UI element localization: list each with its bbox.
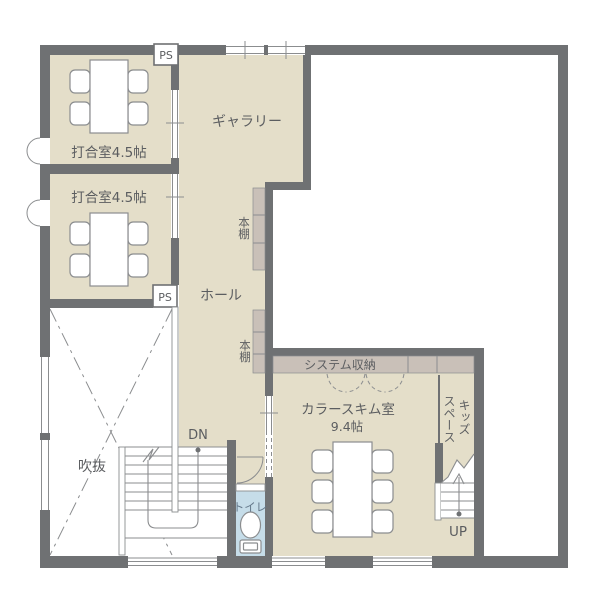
chair-icon xyxy=(372,510,393,533)
gallery-label: ギャラリー xyxy=(212,114,282,130)
meeting-room-1-label: 打合室4.5帖 xyxy=(71,144,146,161)
ps-shaft: PS xyxy=(153,285,177,307)
stair-start-dot xyxy=(196,448,201,453)
floor-plan: PS PS xyxy=(0,0,611,611)
wall-toilet-left xyxy=(227,440,236,556)
bookshelf-icon xyxy=(253,188,265,270)
stairs-down-label: DN xyxy=(188,428,208,443)
window xyxy=(272,556,325,568)
wall-hall-east-b xyxy=(265,477,273,556)
system-storage-label: システム収納 xyxy=(304,358,376,372)
meeting-table-icon xyxy=(90,60,128,133)
railing xyxy=(172,307,178,512)
stair-start-dot xyxy=(457,512,462,517)
chair-icon xyxy=(312,480,333,503)
wall-hall-west-c xyxy=(171,238,179,285)
meeting-room-2-label: 打合室4.5帖 xyxy=(71,189,146,206)
entry-door-icon xyxy=(27,138,50,164)
color-scheme-room-label: カラースキム室 xyxy=(301,401,395,418)
floor-plan-page: PS PS xyxy=(0,0,611,611)
chair-icon xyxy=(70,70,90,93)
stairs-up-label: UP xyxy=(449,524,467,540)
window xyxy=(128,556,217,568)
storage-units xyxy=(253,188,474,373)
kids-space-label: キッズ xyxy=(457,399,471,435)
void-label: 吹抜 xyxy=(78,459,106,475)
window xyxy=(40,440,50,510)
chair-icon xyxy=(128,102,148,125)
wall-colorroom-right xyxy=(474,348,484,556)
meeting-table-icon xyxy=(90,213,128,286)
color-scheme-room-furniture xyxy=(312,442,393,537)
railing xyxy=(119,447,125,555)
ps-top-label: PS xyxy=(159,49,173,62)
window xyxy=(40,357,50,435)
chair-icon xyxy=(312,510,333,533)
wall-kids-space xyxy=(435,443,443,483)
wall-gallery-east xyxy=(303,55,311,190)
toilet-label: トイレ xyxy=(233,500,268,514)
kids-space-label: スペース xyxy=(442,395,456,443)
sliding-door-icon xyxy=(265,431,273,477)
window xyxy=(373,556,432,568)
chair-icon xyxy=(128,254,148,277)
railing xyxy=(435,483,441,520)
color-scheme-room-size-label: 9.4帖 xyxy=(331,419,363,434)
chair-icon xyxy=(372,450,393,473)
chair-icon xyxy=(128,70,148,93)
toilet-room xyxy=(236,484,265,556)
chair-icon xyxy=(70,254,90,277)
wall-meeting2-bottom xyxy=(50,299,153,308)
chair-icon xyxy=(128,222,148,245)
chair-icon xyxy=(70,222,90,245)
window-joint xyxy=(40,433,50,440)
toilet-icon xyxy=(240,512,261,553)
wall-outer-right xyxy=(558,45,568,568)
chair-icon xyxy=(70,102,90,125)
toilet-threshold xyxy=(236,484,265,491)
bookshelf-lower-label: 本棚 xyxy=(238,339,252,364)
chair-icon xyxy=(312,450,333,473)
dining-table-icon xyxy=(333,442,372,537)
wall-colorroom-top xyxy=(273,348,484,356)
hall-label: ホール xyxy=(200,288,242,304)
entry-door-icon xyxy=(27,200,50,226)
bookshelf-icon xyxy=(253,310,265,373)
bookshelf-upper-label: 本棚 xyxy=(237,216,251,241)
ps-middle-label: PS xyxy=(158,291,172,304)
chair-icon xyxy=(372,480,393,503)
wall-hall-east-a xyxy=(265,182,273,396)
wall-hall-west-b xyxy=(171,158,179,174)
ps-shaft: PS xyxy=(154,44,178,65)
wall-meeting-divider xyxy=(50,164,179,174)
